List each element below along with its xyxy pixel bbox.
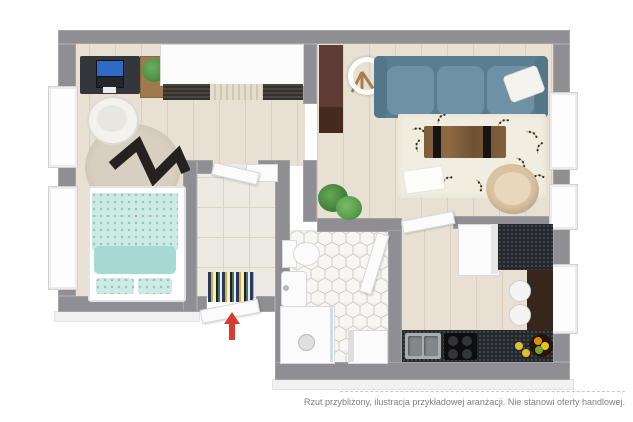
shower-head-icon [298, 334, 315, 351]
sideboard [163, 84, 210, 100]
fridge-side [491, 224, 498, 274]
burner-icon [448, 336, 458, 346]
sofa-cushion [437, 66, 484, 115]
fruit-icon [535, 346, 543, 354]
caption-divider [340, 391, 625, 392]
lemon-icon [515, 342, 523, 350]
wall-bedroom-living [303, 160, 317, 222]
coffee-table [424, 126, 506, 158]
floor-plan-page: { "caption": { "text": "Rzut przybliżony… [0, 0, 633, 422]
caption-text: Rzut przybliżony, ilustracja przykładowe… [300, 397, 625, 407]
burner-icon [462, 349, 472, 359]
bar-stool [509, 304, 531, 326]
sofa-armrest [374, 56, 387, 118]
sideboard [263, 84, 303, 100]
egg-chair-seat [97, 105, 127, 132]
mouse-pad [103, 87, 116, 93]
bed-duvet [92, 193, 178, 250]
bed-blanket [94, 246, 176, 274]
bar-table [527, 270, 553, 332]
bed-pillow [138, 278, 172, 294]
entry-cabinet-shelf [319, 107, 343, 133]
wall-top [58, 30, 570, 44]
toilet-icon [293, 242, 320, 266]
table-strap [433, 126, 441, 158]
faucet-icon [283, 285, 289, 291]
bar-stool [509, 280, 531, 302]
window-kitchen [549, 264, 578, 334]
shower-glass [330, 306, 333, 362]
sink-bowl [424, 336, 438, 356]
bench-runner [210, 84, 263, 100]
wall-base [272, 379, 574, 390]
bed-pillow [96, 278, 134, 294]
arrow-up-icon [224, 312, 240, 340]
armchair-seat [494, 172, 531, 205]
sofa [374, 56, 548, 118]
burner-icon [448, 349, 458, 359]
laptop-icon [96, 60, 124, 77]
plant-icon [336, 196, 362, 220]
burner-icon [462, 336, 472, 346]
wall-bedroom-living [303, 44, 317, 104]
window-living-2 [549, 184, 578, 230]
doormat [208, 272, 254, 302]
wall-bottom [275, 362, 570, 380]
floor-plan: Rzut przybliżony, ilustracja przykładowe… [0, 0, 633, 422]
sink-bowl [408, 336, 422, 356]
wardrobe [160, 44, 304, 86]
window-living-1 [549, 92, 578, 170]
entry-cabinet [319, 45, 343, 107]
washing-machine-panel [348, 330, 354, 362]
folding-screen [108, 132, 190, 192]
wall-bathroom-kitchen [388, 230, 402, 364]
wall-base [54, 311, 200, 322]
lemon-icon [522, 349, 530, 357]
bed [88, 186, 186, 302]
washing-machine [348, 330, 388, 364]
window-bedroom-2 [48, 186, 78, 290]
sofa-cushion [387, 66, 434, 115]
table-strap [483, 126, 491, 158]
kitchen-counter-top [498, 224, 553, 270]
window-bedroom-1 [48, 86, 78, 168]
